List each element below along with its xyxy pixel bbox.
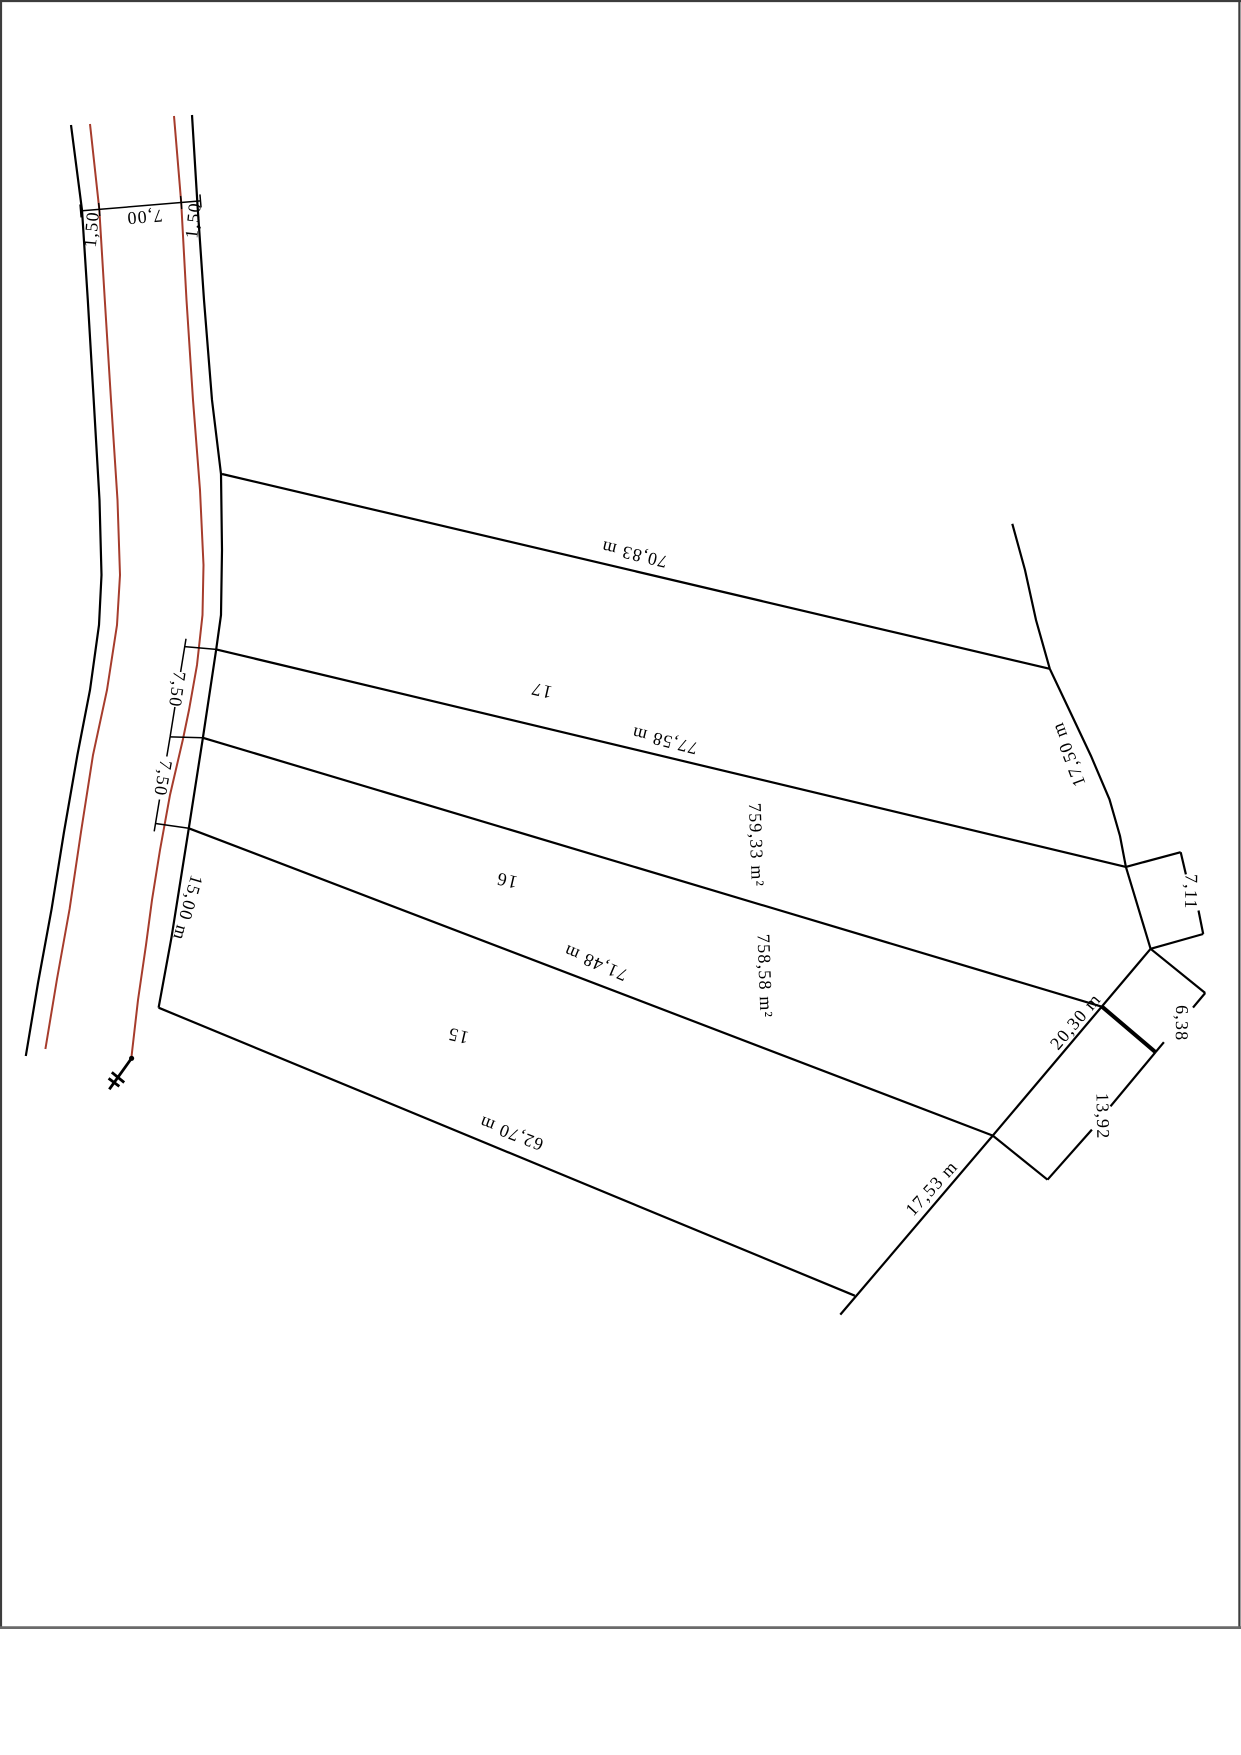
svg-text:1,50: 1,50 — [80, 210, 103, 248]
svg-text:7,00: 7,00 — [125, 206, 163, 229]
svg-text:6,38: 6,38 — [1172, 1005, 1192, 1041]
svg-text:13,92: 13,92 — [1092, 1093, 1113, 1140]
svg-text:759,33 m²: 759,33 m² — [745, 803, 768, 888]
svg-text:7,11: 7,11 — [1181, 874, 1202, 910]
svg-text:1,50: 1,50 — [181, 201, 205, 239]
svg-text:758,58 m²: 758,58 m² — [754, 934, 777, 1019]
